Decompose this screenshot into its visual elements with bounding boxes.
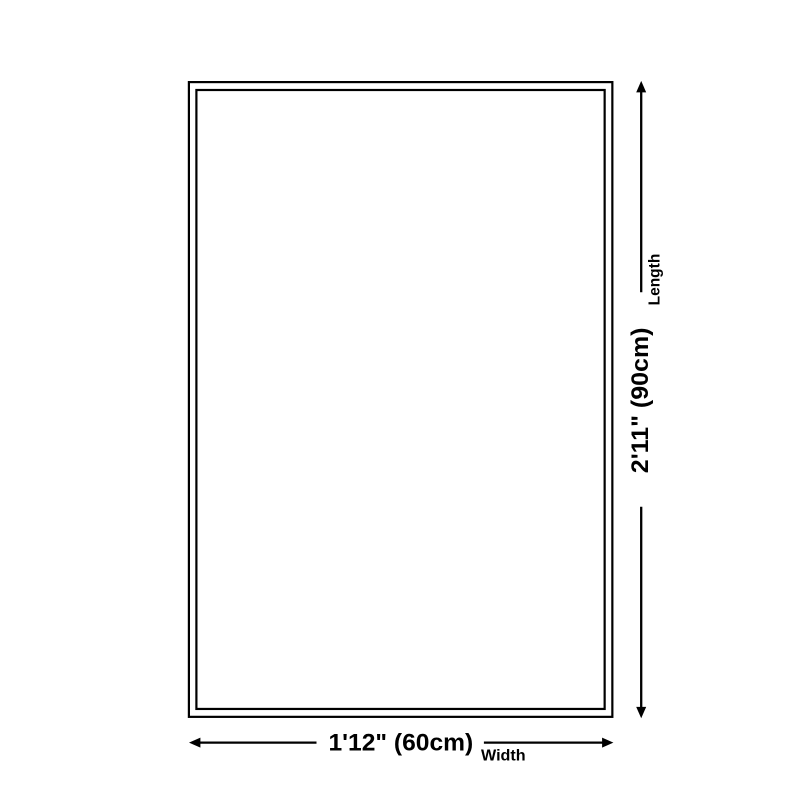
svg-text:1'12" (60cm): 1'12" (60cm) <box>329 730 474 757</box>
svg-text:Width: Width <box>481 748 526 765</box>
svg-text:Length: Length <box>647 254 664 306</box>
svg-text:2'11" (90cm): 2'11" (90cm) <box>627 328 654 474</box>
